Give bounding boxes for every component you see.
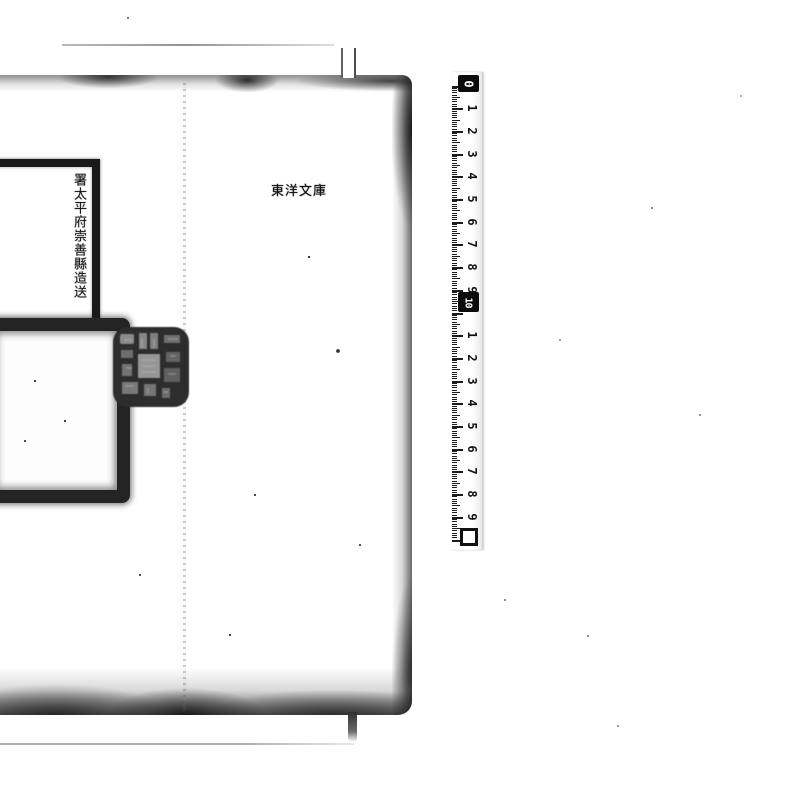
ruler-tick: [452, 235, 457, 236]
ruler-tick: [452, 487, 457, 488]
ruler-tick: [452, 242, 457, 243]
scan-photo: 署太平府崇善縣造送 東洋文庫: [0, 0, 800, 800]
ruler-tick: [452, 437, 460, 438]
ruler-tick: [452, 213, 457, 214]
ruler-tick: [452, 338, 457, 339]
ruler-end-square-icon: [460, 528, 478, 546]
ruler-tick: [452, 285, 457, 286]
ruler-tick: [452, 95, 457, 96]
ruler-tick: [452, 288, 457, 289]
ruler-tick: [452, 505, 460, 506]
ruler-tick: [452, 401, 457, 402]
ruler-tick: [452, 392, 460, 393]
ruler-number: 9: [465, 510, 479, 524]
ruler-tick: [452, 456, 457, 457]
ruler-tick: [452, 210, 460, 211]
ruler-tick: [452, 444, 457, 445]
library-ownership-stamp: 東洋文庫: [271, 180, 327, 199]
page-right-edge-smudge: [392, 75, 412, 715]
seal-graphic: [112, 326, 190, 408]
ruler-tick: [452, 101, 457, 102]
photo-ruler: 123456789123456789 0 10: [452, 72, 483, 550]
ruler-tick: [452, 415, 460, 416]
ruler-tick: [452, 170, 457, 171]
backing-sheet-edge-bottom: [0, 743, 354, 745]
ruler-tick: [452, 281, 457, 282]
ruler-tick: [452, 433, 457, 434]
ruler-tick: [452, 376, 457, 377]
ruler-tick: [452, 397, 457, 398]
ruler-tick: [452, 292, 457, 293]
ruler-tick: [452, 135, 457, 136]
ruler-ten-label: 10: [463, 297, 474, 307]
ruler-tick: [452, 390, 457, 391]
ruler-tick: [452, 372, 457, 373]
ruler-tick: [452, 360, 457, 361]
ruler-tick: [452, 365, 457, 366]
ruler-tick: [452, 272, 457, 273]
ruler-tick: [452, 308, 457, 309]
ruler-tick: [452, 192, 457, 193]
large-square-stamp-icon: [0, 318, 130, 503]
ruler-tick: [452, 453, 457, 454]
ruler-tick: [452, 435, 457, 436]
ruler-tick: [452, 247, 457, 248]
ruler-number: 1: [465, 328, 479, 342]
ruler-tick: [452, 353, 457, 354]
ruler-tick: [452, 492, 457, 493]
ruler-tick: [452, 342, 457, 343]
ruler-tick: [452, 251, 457, 252]
ruler-tick: [452, 351, 457, 352]
ruler-tick: [452, 190, 457, 191]
ruler-tick: [452, 481, 457, 482]
ruler-tick: [452, 328, 457, 329]
ruler-tick: [452, 181, 457, 182]
ruler-tick: [452, 524, 457, 525]
ruler-tick: [452, 462, 457, 463]
ruler-tick: [452, 340, 457, 341]
ruler-tick: [452, 431, 457, 432]
ruler-tick: [452, 465, 457, 466]
ruler-number: 6: [465, 442, 479, 456]
ruler-number: 2: [465, 124, 479, 138]
ruler-tick: [452, 120, 460, 121]
ruler-tick: [452, 478, 457, 479]
ruler-tick: [452, 322, 457, 323]
page-tab-top: [341, 48, 356, 78]
ruler-tick: [452, 254, 457, 255]
ruler-tick: [452, 533, 457, 534]
ruler-tick: [452, 278, 460, 279]
ruler-tick: [452, 324, 460, 325]
book-leaf: 署太平府崇善縣造送 東洋文庫: [0, 75, 412, 715]
page-bottom-edge-smudge: [0, 657, 412, 715]
ruler-tick: [452, 283, 457, 284]
ruler-tick: [452, 440, 457, 441]
seal-stamp-icon: [112, 326, 190, 408]
ruler-zero-marker: 0: [458, 75, 479, 92]
ruler-tick: [452, 490, 457, 491]
backing-sheet-edge-top: [62, 44, 334, 46]
ruler-tick: [452, 142, 460, 143]
ruler-tick: [452, 406, 457, 407]
ruler-tick: [452, 138, 457, 139]
ruler-tick: [452, 158, 457, 159]
ruler-tick: [452, 97, 460, 98]
ruler-tick: [452, 90, 457, 91]
ruler-number: 5: [465, 192, 479, 206]
ruler-tick: [452, 399, 457, 400]
ruler-tick: [452, 183, 457, 184]
ruler-tick: [452, 256, 460, 257]
ruler-tick: [452, 167, 457, 168]
ruler-tick: [452, 510, 457, 511]
ruler-tick: [452, 140, 457, 141]
ruler-tick: [452, 226, 457, 227]
ruler-tick: [452, 204, 457, 205]
ruler-tick: [452, 519, 457, 520]
ruler-tick: [452, 315, 457, 316]
ruler-tick: [452, 446, 457, 447]
ruler-number: 3: [465, 374, 479, 388]
ruler-tick: [452, 408, 457, 409]
ruler-tick: [452, 469, 457, 470]
ruler-tick: [452, 179, 457, 180]
ruler-tick: [452, 474, 457, 475]
ruler-number: 8: [465, 260, 479, 274]
ruler-tick: [452, 319, 457, 320]
ruler-tick: [452, 208, 457, 209]
ruler-tick: [452, 265, 457, 266]
ruler-tick: [452, 229, 457, 230]
ruler-tick: [452, 294, 457, 295]
ruler-tick: [452, 347, 460, 348]
ruler-tick: [452, 394, 457, 395]
ruler-tick: [452, 499, 457, 500]
ruler-tick: [452, 428, 457, 429]
ruler-tick: [452, 535, 457, 536]
ruler-tick: [452, 92, 457, 93]
ruler-tick: [452, 458, 457, 459]
ruler-number: 6: [465, 215, 479, 229]
ruler-tick: [452, 317, 457, 318]
ruler-tick: [452, 124, 457, 125]
ruler-tick: [452, 442, 457, 443]
ruler-tick: [452, 115, 457, 116]
submission-label-frame: 署太平府崇善縣造送: [0, 159, 100, 327]
ruler-tick: [452, 185, 457, 186]
page-tab-bottom: [348, 712, 357, 742]
ruler-tick: [452, 188, 460, 189]
ruler-tick: [452, 269, 457, 270]
ruler-tick: [452, 496, 457, 497]
ruler-tick: [452, 503, 457, 504]
ruler-tick: [452, 215, 457, 216]
ruler-tick: [452, 111, 457, 112]
ruler-tick: [452, 133, 457, 134]
ruler-tick: [452, 383, 457, 384]
ruler-tick: [452, 369, 460, 370]
ruler-number: 7: [465, 464, 479, 478]
ruler-tick: [452, 238, 457, 239]
ruler-number: 7: [465, 237, 479, 251]
ruler-tick: [452, 151, 457, 152]
ruler-tick: [452, 303, 457, 304]
ruler-number: 4: [465, 396, 479, 410]
ruler-tick: [452, 512, 457, 513]
ruler-tick: [452, 501, 457, 502]
ruler-tick: [452, 349, 457, 350]
ruler-tick: [452, 467, 457, 468]
ruler-tick: [452, 326, 457, 327]
ruler-tick: [452, 410, 457, 411]
ruler-tick: [452, 476, 457, 477]
ruler-number: 8: [465, 487, 479, 501]
ruler-number: 2: [465, 351, 479, 365]
ruler-tick: [452, 508, 457, 509]
ruler-tick: [452, 460, 460, 461]
ruler-tick: [452, 174, 457, 175]
ruler-tick: [452, 331, 457, 332]
ruler-tick: [452, 106, 457, 107]
ruler-tick: [452, 117, 457, 118]
ruler-number: 4: [465, 169, 479, 183]
ruler-tick: [452, 233, 460, 234]
ruler-number: 5: [465, 419, 479, 433]
ruler-tick: [452, 206, 457, 207]
ruler-tick: [452, 240, 457, 241]
ruler-tick: [452, 297, 457, 298]
ruler-tick: [452, 451, 457, 452]
ruler-tick: [452, 147, 457, 148]
ruler-tick: [452, 263, 457, 264]
ruler-tick: [452, 419, 457, 420]
ruler-tick: [452, 537, 457, 538]
ruler-tick: [452, 387, 457, 388]
ruler-tick: [452, 378, 457, 379]
ruler-tick: [452, 417, 457, 418]
ruler-tick: [452, 310, 457, 311]
ruler-tick: [452, 201, 457, 202]
ruler-tick: [452, 249, 457, 250]
ruler-tick: [452, 224, 457, 225]
ruler-tick: [452, 333, 457, 334]
ruler-number: 3: [465, 147, 479, 161]
ruler-tick: [452, 88, 457, 89]
ruler-tick: [452, 485, 457, 486]
submission-label-text: 署太平府崇善縣造送: [69, 173, 88, 299]
ruler-tick: [452, 195, 457, 196]
ruler-tick: [452, 374, 457, 375]
ruler-tick: [452, 528, 460, 529]
ruler-tick: [452, 104, 457, 105]
ruler-tick: [452, 258, 457, 259]
ruler-tick: [452, 219, 457, 220]
ruler-tick: [452, 412, 457, 413]
ruler-tick: [452, 521, 457, 522]
ruler-tick: [452, 299, 457, 300]
ruler-tick: [452, 163, 457, 164]
ruler-tick: [452, 260, 457, 261]
ruler-tick: [452, 367, 457, 368]
ruler-tick: [452, 165, 460, 166]
ruler-tick: [452, 274, 457, 275]
ruler-tick: [452, 515, 457, 516]
ruler-tick: [452, 385, 457, 386]
ruler-tick: [452, 231, 457, 232]
ruler-zero-label: 0: [461, 80, 475, 87]
ruler-tick: [452, 99, 457, 100]
ruler-tick: [452, 129, 457, 130]
ruler-tick: [452, 126, 457, 127]
ruler-tick: [452, 122, 457, 123]
ruler-tick: [452, 113, 457, 114]
ruler-tick: [452, 156, 457, 157]
ruler-tick: [452, 483, 460, 484]
ruler-tick: [452, 306, 457, 307]
ruler-tick: [452, 276, 457, 277]
ruler-tick: [452, 422, 457, 423]
ruler-tick: [452, 217, 457, 218]
ruler-number: 1: [465, 101, 479, 115]
ruler-tick: [452, 526, 457, 527]
ruler-tick: [452, 149, 457, 150]
ruler-tick: [452, 172, 457, 173]
ruler-tick: [452, 362, 457, 363]
ruler-tick: [452, 145, 457, 146]
ruler-tick: [452, 197, 457, 198]
ruler-tick: [452, 530, 457, 531]
ruler-tick: [452, 424, 457, 425]
ruler-tick: [452, 344, 457, 345]
ruler-ten-marker: 10: [458, 292, 479, 312]
ruler-tick: [452, 356, 457, 357]
ruler-tick: [452, 160, 457, 161]
